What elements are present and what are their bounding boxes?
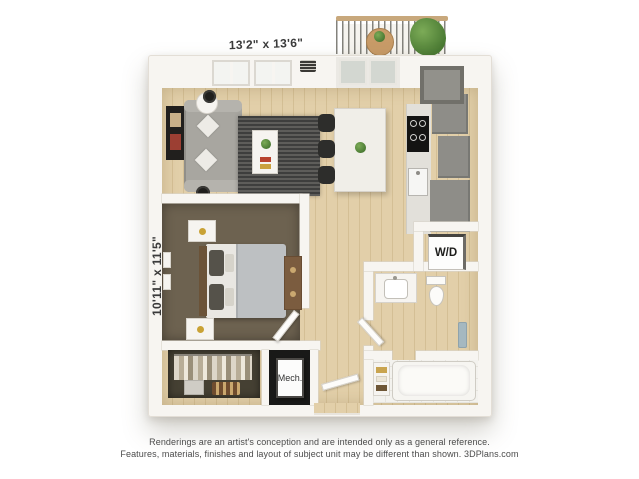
entry-threshold	[314, 403, 360, 415]
burner-icon	[419, 134, 426, 141]
nightstand	[188, 220, 216, 242]
wall-closet-mech	[262, 350, 269, 405]
closet-storage-box	[184, 380, 204, 395]
sofa	[184, 100, 242, 192]
bed-accent-pillow	[225, 254, 234, 272]
faucet-icon	[416, 171, 420, 175]
window-mullion	[230, 62, 233, 84]
bed-duvet	[236, 244, 286, 318]
nightstand-lamp-icon	[199, 228, 206, 235]
wall-bath-tub-right	[416, 351, 478, 360]
mechanical-sign: Mech.	[276, 358, 304, 398]
vanity-sink	[384, 279, 408, 299]
bar-stool	[318, 140, 335, 158]
cooktop	[407, 116, 429, 152]
bar-stool	[318, 114, 335, 132]
folded-towel	[376, 367, 387, 373]
area-rug	[238, 116, 320, 196]
coffee-table-books	[260, 157, 271, 162]
coffee-table-books	[260, 164, 271, 169]
living-window-right	[254, 60, 292, 86]
kitchen-sink	[408, 168, 428, 196]
bedroom-dimensions: 10'11" x 11'5"	[150, 207, 164, 345]
hvac-vent-icon	[300, 60, 316, 72]
bathroom-vanity	[375, 273, 417, 303]
bedroom-wall-art	[163, 274, 171, 290]
faucet-icon	[393, 276, 397, 280]
wall-mech-hall	[310, 350, 318, 405]
bed-pillow	[209, 250, 224, 276]
floor-plan-rendering: Mech. W/D 13'2" x 13'6" 10'11" x 11'5" R…	[0, 0, 639, 479]
refrigerator	[420, 66, 464, 104]
island-plant	[355, 142, 366, 153]
burner-icon	[410, 134, 417, 141]
wall-bedroom-closet	[162, 341, 320, 350]
burner-icon	[419, 120, 426, 127]
living-area-dimensions: 13'2" x 13'6"	[200, 35, 332, 54]
burner-icon	[410, 120, 417, 127]
folded-towel	[376, 376, 387, 382]
balcony-potted-plant	[410, 18, 446, 56]
french-door-pane	[369, 59, 397, 85]
bar-stool	[318, 166, 335, 184]
window-mullion	[272, 62, 275, 84]
patio-table-plant	[374, 31, 385, 42]
bathtub-basin	[398, 365, 470, 396]
washer-dryer-label: W/D	[435, 247, 457, 259]
mechanical-sign-label: Mech.	[278, 373, 303, 383]
sofa-armrest-bottom	[184, 180, 242, 192]
table-lamp	[203, 90, 216, 103]
art-detail	[170, 113, 181, 127]
folded-towel	[376, 385, 387, 391]
coffee-table-plant	[261, 139, 271, 149]
disclaimer-line-2: Features, materials, finishes and layout…	[0, 448, 639, 460]
kitchen-cabinet	[438, 136, 470, 178]
bathtub	[392, 361, 476, 401]
living-wall-art	[166, 106, 186, 160]
bedroom-wall-art	[163, 252, 171, 268]
disclaimer-line-1: Renderings are an artist's conception an…	[0, 436, 639, 448]
bed-accent-pillow	[225, 288, 234, 306]
french-door-pane	[339, 59, 367, 85]
coffee-table	[252, 130, 278, 174]
nightstand-lamp-icon	[197, 326, 204, 333]
washer-dryer-unit: W/D	[428, 234, 466, 270]
dresser-decor	[290, 267, 296, 273]
balcony-french-door	[336, 57, 400, 88]
toilet-tank	[426, 276, 446, 285]
nightstand	[186, 318, 214, 340]
dresser	[284, 256, 302, 310]
dresser-decor	[290, 291, 296, 297]
wall-kitchen-wd	[414, 222, 478, 231]
wall-living-bedroom	[162, 194, 302, 203]
bath-towel	[458, 322, 467, 348]
closet-bench	[212, 382, 240, 395]
refrigerator-front	[424, 70, 460, 100]
art-detail	[170, 134, 181, 150]
wall-bath-tub-left	[364, 351, 392, 360]
closet-hanging-clothes	[174, 354, 252, 380]
living-window-left	[212, 60, 250, 86]
bed-pillow	[209, 284, 224, 310]
footer-disclaimer: Renderings are an artist's conception an…	[0, 436, 639, 460]
towel-shelf	[373, 362, 390, 396]
bed-headboard	[199, 246, 207, 316]
wall-tubroom-hall	[364, 360, 373, 405]
